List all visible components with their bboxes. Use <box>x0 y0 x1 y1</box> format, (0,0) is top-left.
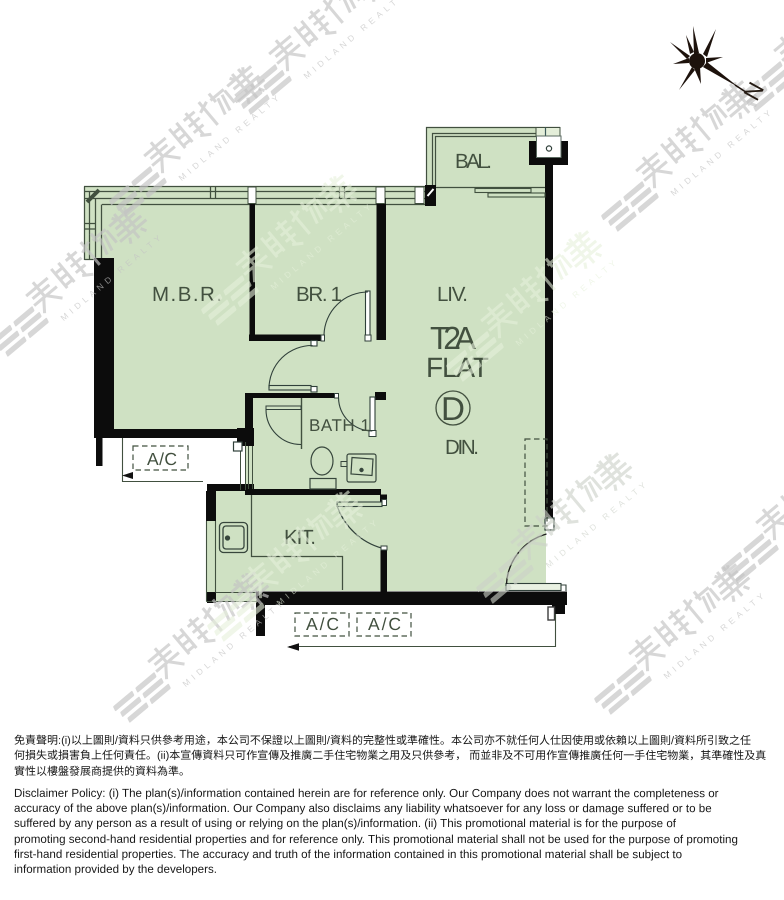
svg-text:D: D <box>441 390 465 427</box>
svg-text:A/C: A/C <box>368 614 401 634</box>
svg-text:BR. 1: BR. 1 <box>296 283 342 306</box>
svg-text:A/C: A/C <box>306 614 339 634</box>
svg-text:BATH 1: BATH 1 <box>309 416 370 435</box>
svg-text:T2A: T2A <box>430 320 477 356</box>
svg-text:BAL.: BAL. <box>455 150 492 173</box>
svg-text:LIV.: LIV. <box>437 283 468 306</box>
svg-text:A/C: A/C <box>147 449 177 469</box>
svg-text:DIN.: DIN. <box>445 436 479 459</box>
